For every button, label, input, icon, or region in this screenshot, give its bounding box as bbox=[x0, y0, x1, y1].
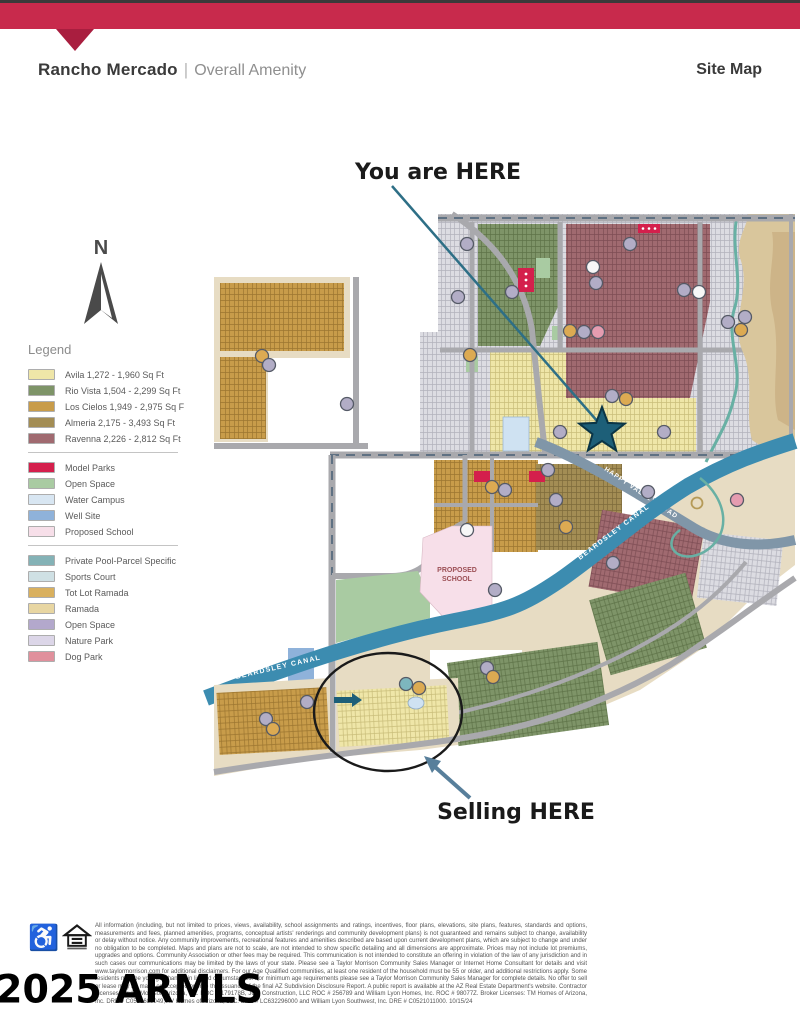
los-cielos-parcels bbox=[216, 687, 329, 755]
amenity-marker bbox=[550, 494, 563, 507]
amenity-marker bbox=[554, 426, 567, 439]
green-pocket bbox=[536, 258, 550, 278]
footer-icons: ♿ bbox=[28, 922, 92, 958]
ravenna-parcels bbox=[566, 224, 710, 398]
amenity-marker bbox=[413, 682, 426, 695]
amenity-marker bbox=[587, 261, 600, 274]
amenity-marker bbox=[620, 393, 633, 406]
amenity-pond bbox=[408, 697, 424, 709]
armls-watermark: 2025 ARMLS bbox=[0, 966, 263, 1012]
amenity-marker bbox=[731, 494, 744, 507]
amenity-marker bbox=[267, 723, 280, 736]
amenity-marker bbox=[606, 390, 619, 403]
school-label-line1: PROPOSED bbox=[437, 567, 477, 574]
flyer-page: Rancho Mercado|Overall Amenity Site Map … bbox=[0, 0, 800, 1032]
selling-here-label: Selling HERE bbox=[437, 800, 595, 825]
water-campus bbox=[503, 417, 529, 451]
school-label-line2: SCHOOL bbox=[442, 576, 473, 583]
you-are-here-label: You are HERE bbox=[354, 160, 521, 185]
amenity-marker bbox=[658, 426, 671, 439]
los-cielos-parcels bbox=[220, 283, 344, 351]
selling-here-arrow-line bbox=[434, 766, 470, 798]
amenity-marker bbox=[487, 671, 500, 684]
amenity-marker bbox=[590, 277, 603, 290]
amenity-marker bbox=[560, 521, 573, 534]
amenity-marker bbox=[489, 584, 502, 597]
amenity-marker bbox=[607, 557, 620, 570]
amenity-marker bbox=[578, 326, 591, 339]
amenity-marker bbox=[592, 326, 605, 339]
northwest-pod bbox=[214, 277, 368, 446]
model-park bbox=[518, 268, 534, 292]
amenity-marker bbox=[486, 481, 499, 494]
model-park bbox=[638, 224, 660, 233]
amenity-marker bbox=[400, 678, 413, 691]
amenity-marker bbox=[341, 398, 354, 411]
amenity-marker bbox=[461, 524, 474, 537]
los-cielos-parcels bbox=[220, 357, 266, 439]
amenity-marker bbox=[642, 486, 655, 499]
amenity-marker bbox=[301, 696, 314, 709]
amenity-marker bbox=[722, 316, 735, 329]
amenity-marker bbox=[564, 325, 577, 338]
amenity-marker bbox=[499, 484, 512, 497]
amenity-marker bbox=[542, 464, 555, 477]
accessibility-icon: ♿ bbox=[28, 924, 59, 953]
amenity-marker bbox=[678, 284, 691, 297]
amenity-marker bbox=[464, 349, 477, 362]
proposed-school: PROPOSED SCHOOL bbox=[420, 526, 492, 620]
equal-housing-icon bbox=[62, 922, 92, 952]
amenity-marker bbox=[461, 238, 474, 251]
model-park bbox=[474, 471, 490, 482]
amenity-marker bbox=[624, 238, 637, 251]
amenity-marker bbox=[506, 286, 519, 299]
site-map: PROPOSED SCHOOL HAPPY VALLEY ROAD BEARDS… bbox=[0, 0, 800, 1032]
amenity-marker bbox=[263, 359, 276, 372]
amenity-marker bbox=[735, 324, 748, 337]
amenity-marker bbox=[739, 311, 752, 324]
amenity-marker bbox=[693, 286, 706, 299]
amenity-marker bbox=[452, 291, 465, 304]
